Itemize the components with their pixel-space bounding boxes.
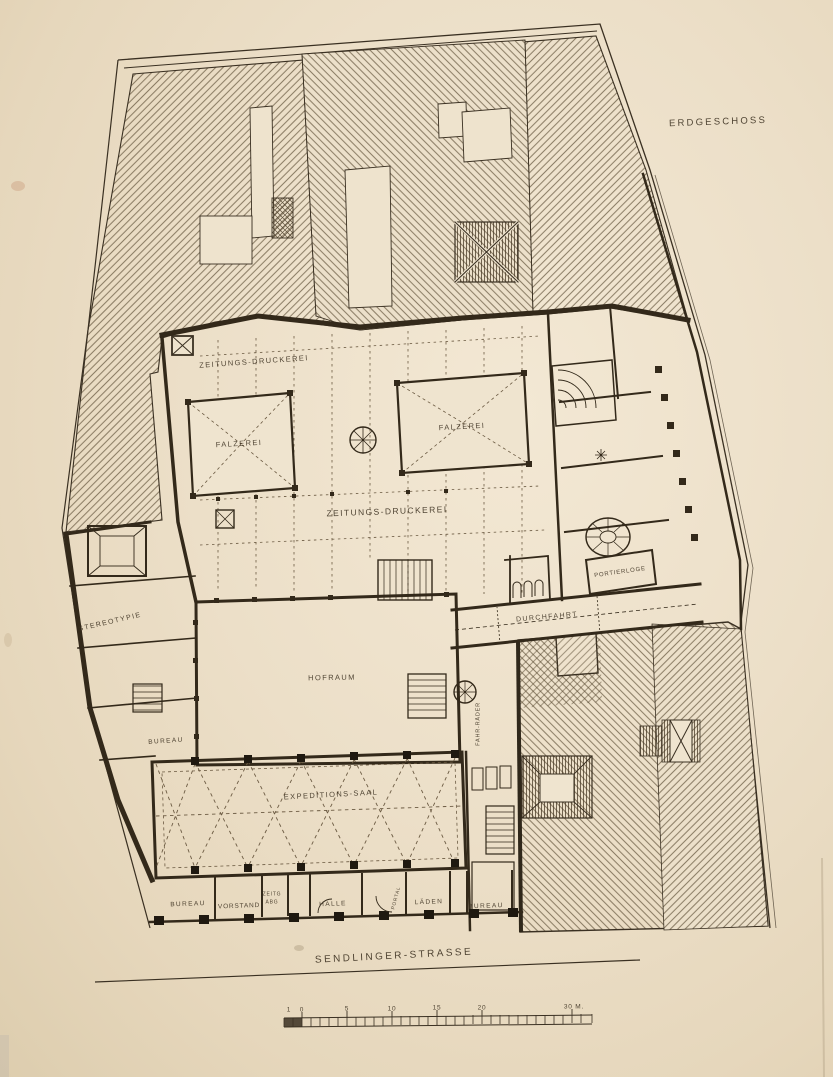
label-bureau-se: BUREAU <box>468 902 504 910</box>
label-hofraum: HOFRAUM <box>308 673 356 683</box>
neighbor-building-southeast <box>518 622 768 932</box>
label-zeitungs-druckerei-north: ZEITUNGS-DRUCKEREI <box>199 353 309 370</box>
label-durchfahrt: DURCHFAHRT <box>516 611 578 623</box>
label-abg: ABG <box>266 899 279 905</box>
scale-tick-1: 1 <box>287 1007 291 1014</box>
label-fahrraeder: FAHR-RÄDER <box>474 702 481 746</box>
roof-skylight-north <box>455 222 518 282</box>
lightwell-marker <box>640 720 700 762</box>
scale-tick-20: 20 <box>478 1005 487 1012</box>
courtyard-piers <box>193 592 449 739</box>
label-portierloge: PORTIERLOGE <box>594 566 646 579</box>
street-curb-line <box>95 960 640 982</box>
scale-tick-0: 0 <box>300 1007 304 1014</box>
label-stereotypie: STEREOTYPIE <box>78 612 142 633</box>
pier-row-east <box>655 366 698 541</box>
plan-title: ERDGESCHOSS <box>669 115 767 129</box>
portal-door-arc <box>376 896 392 912</box>
roof-skylight-southeast <box>522 756 592 818</box>
label-vorstand: VORSTAND <box>218 902 260 910</box>
expedition-hall-structure <box>156 750 462 874</box>
scale-tick-5: 5 <box>345 1006 349 1013</box>
scanned-floor-plan-page: ERDGESCHOSS ZEITUNGS-DRUCKEREI FALZEREI … <box>0 0 833 1077</box>
label-expeditions-saal: EXPEDITIONS-SAAL <box>284 788 379 802</box>
scale-tick-10: 10 <box>388 1006 397 1013</box>
label-laeden: LÄDEN <box>415 897 444 906</box>
label-zeitg: ZEITG <box>263 891 282 897</box>
shaft-marker-icon <box>172 336 193 355</box>
scale-tick-15: 15 <box>433 1005 442 1012</box>
neighbor-buildings-north <box>66 36 688 532</box>
street-facade-piers <box>154 908 518 925</box>
label-bureau-sw: BUREAU <box>170 900 206 908</box>
floor-plan-drawing: ERDGESCHOSS ZEITUNGS-DRUCKEREI FALZEREI … <box>0 0 833 1077</box>
street-name: SENDLINGER-STRASSE <box>315 947 474 966</box>
skylight-west-wing <box>88 526 146 576</box>
label-halle: HALLE <box>319 900 347 908</box>
scale-tick-30m: 30 M. <box>564 1004 584 1011</box>
label-zeitungs-druckerei-main: ZEITUNGS-DRUCKEREI <box>326 504 447 518</box>
scale-bar: 1 0 5 10 15 20 30 M. <box>284 1004 592 1027</box>
label-bureau-west: BUREAU <box>148 736 184 745</box>
label-portal: PORTAL <box>390 886 402 910</box>
